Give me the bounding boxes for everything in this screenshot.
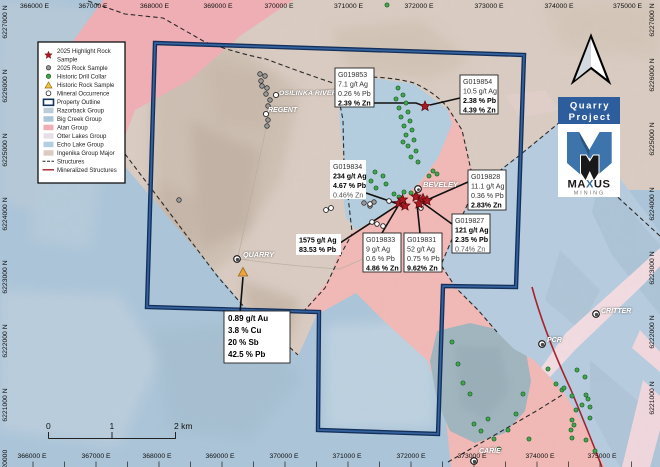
svg-text:370000 E: 370000 E	[264, 3, 294, 10]
svg-text:11.1 g/t Ag: 11.1 g/t Ag	[471, 183, 504, 191]
svg-text:368000 E: 368000 E	[140, 3, 170, 10]
svg-text:6226000 N: 6226000 N	[2, 69, 9, 102]
svg-text:6220000: 6220000	[2, 450, 9, 467]
svg-text:Sample: Sample	[57, 58, 78, 64]
svg-text:6227000 N: 6227000 N	[2, 5, 9, 38]
svg-text:G019853: G019853	[338, 71, 367, 79]
svg-text:373000 E: 373000 E	[457, 453, 487, 460]
svg-text:Project: Project	[569, 112, 612, 123]
svg-text:2 km: 2 km	[174, 421, 192, 431]
svg-text:Historic Drill Collar: Historic Drill Collar	[57, 75, 106, 81]
svg-text:MINING: MINING	[574, 191, 605, 197]
svg-text:83.53 % Pb: 83.53 % Pb	[299, 246, 337, 254]
svg-text:4.39 % Zn: 4.39 % Zn	[463, 107, 496, 115]
svg-text:10.5 g/t Ag: 10.5 g/t Ag	[463, 88, 497, 96]
svg-text:121 g/t Ag: 121 g/t Ag	[455, 227, 489, 235]
svg-text:374000 E: 374000 E	[525, 453, 555, 460]
svg-text:Echo Lake Group: Echo Lake Group	[57, 143, 104, 149]
svg-text:9.62% Zn: 9.62% Zn	[407, 265, 438, 273]
svg-text:G019831: G019831	[407, 236, 436, 244]
svg-text:0.36 % Pb: 0.36 % Pb	[471, 192, 504, 200]
svg-text:BEVELEY: BEVELEY	[423, 180, 459, 189]
svg-text:6227000 N: 6227000 N	[649, 3, 656, 36]
svg-text:371000 E: 371000 E	[332, 453, 362, 460]
svg-text:6222000 N: 6222000 N	[2, 324, 9, 357]
svg-text:G019833: G019833	[366, 236, 395, 244]
svg-text:4.86 % Zn: 4.86 % Zn	[366, 265, 399, 273]
svg-text:3.8 % Cu: 3.8 % Cu	[228, 326, 261, 335]
svg-text:20 % Sb: 20 % Sb	[228, 338, 259, 347]
svg-text:42.5 % Pb: 42.5 % Pb	[228, 350, 265, 359]
svg-text:375000 E: 375000 E	[613, 3, 643, 10]
svg-text:Atan Group: Atan Group	[57, 126, 88, 132]
svg-text:CRITTER: CRITTER	[601, 308, 631, 315]
svg-text:0.6 % Pb: 0.6 % Pb	[366, 255, 395, 263]
svg-text:6225000 N: 6225000 N	[2, 133, 9, 166]
svg-text:373000 E: 373000 E	[474, 3, 504, 10]
svg-text:2025 Highlight Rock: 2025 Highlight Rock	[57, 49, 112, 55]
svg-text:2025 Rock Sample: 2025 Rock Sample	[57, 66, 108, 72]
svg-text:1: 1	[110, 421, 115, 431]
svg-text:2.38 % Pb: 2.38 % Pb	[463, 97, 497, 105]
svg-text:6223000 N: 6223000 N	[649, 251, 656, 284]
svg-text:0: 0	[46, 421, 51, 431]
svg-text:52 g/t Ag: 52 g/t Ag	[407, 246, 435, 254]
svg-text:G019854: G019854	[463, 78, 492, 86]
svg-text:0.75 % Pb: 0.75 % Pb	[407, 255, 440, 263]
svg-text:Structures: Structures	[57, 160, 84, 166]
svg-text:2.35 % Pb: 2.35 % Pb	[455, 236, 489, 244]
svg-text:6221000 N: 6221000 N	[2, 388, 9, 421]
svg-text:7.1 g/t Ag: 7.1 g/t Ag	[338, 81, 368, 89]
svg-text:Property Outline: Property Outline	[57, 100, 101, 106]
svg-text:QUARRY: QUARRY	[243, 250, 275, 259]
svg-text:6223000 N: 6223000 N	[2, 260, 9, 293]
svg-text:Historic Rock Sample: Historic Rock Sample	[57, 83, 115, 89]
svg-text:0.26 % Pb: 0.26 % Pb	[338, 90, 371, 98]
svg-text:1575 g/t Ag: 1575 g/t Ag	[299, 237, 337, 245]
svg-text:374000 E: 374000 E	[544, 3, 574, 10]
svg-text:9 g/t Ag: 9 g/t Ag	[366, 246, 390, 254]
svg-text:367000 E: 367000 E	[81, 453, 111, 460]
svg-text:366000 E: 366000 E	[20, 3, 50, 10]
svg-text:371000 E: 371000 E	[334, 3, 364, 10]
svg-text:Mineral Occurrence: Mineral Occurrence	[57, 92, 110, 98]
svg-text:368000 E: 368000 E	[142, 453, 172, 460]
svg-text:369000 E: 369000 E	[203, 3, 233, 10]
svg-text:PCR: PCR	[547, 337, 562, 344]
svg-text:Ingenika Group Major: Ingenika Group Major	[57, 151, 115, 157]
svg-text:Quarry: Quarry	[570, 101, 610, 112]
svg-text:367000 E: 367000 E	[78, 3, 108, 10]
svg-text:OSILINKA RIVER: OSILINKA RIVER	[279, 90, 337, 97]
svg-text:366000 E: 366000 E	[17, 453, 47, 460]
svg-text:6221000 N: 6221000 N	[649, 381, 656, 414]
svg-text:Big Creek Group: Big Creek Group	[57, 117, 102, 123]
svg-text:G019828: G019828	[471, 173, 500, 181]
svg-text:2.39 % Zn: 2.39 % Zn	[338, 100, 371, 108]
svg-text:0.89 g/t Au: 0.89 g/t Au	[228, 314, 268, 323]
svg-text:369000 E: 369000 E	[205, 453, 235, 460]
svg-text:G019834: G019834	[333, 163, 362, 171]
svg-text:375000 E: 375000 E	[587, 453, 617, 460]
svg-text:0.74% Zn: 0.74% Zn	[455, 246, 485, 254]
svg-text:370000 E: 370000 E	[269, 453, 299, 460]
svg-text:6224000 N: 6224000 N	[2, 197, 9, 230]
svg-text:0.46% Zn: 0.46% Zn	[333, 192, 363, 200]
svg-text:REGENT: REGENT	[268, 107, 298, 114]
svg-text:Razorback Group: Razorback Group	[57, 109, 105, 115]
svg-text:372000 E: 372000 E	[404, 3, 434, 10]
svg-text:G019827: G019827	[455, 217, 484, 225]
svg-text:MAXUS: MAXUS	[568, 179, 611, 191]
svg-text:234 g/t Ag: 234 g/t Ag	[333, 173, 367, 181]
svg-text:6226000 N: 6226000 N	[649, 58, 656, 91]
svg-text:6222000 N: 6222000 N	[649, 315, 656, 348]
svg-text:4.67 % Pb: 4.67 % Pb	[333, 182, 367, 190]
svg-text:372000 E: 372000 E	[396, 453, 426, 460]
svg-text:Otter Lakes Group: Otter Lakes Group	[57, 134, 107, 140]
svg-text:6224000 N: 6224000 N	[649, 187, 656, 220]
svg-text:6225000 N: 6225000 N	[649, 122, 656, 155]
svg-text:Mineralized Structures: Mineralized Structures	[57, 168, 117, 174]
svg-text:2.83% Zn: 2.83% Zn	[471, 202, 502, 210]
